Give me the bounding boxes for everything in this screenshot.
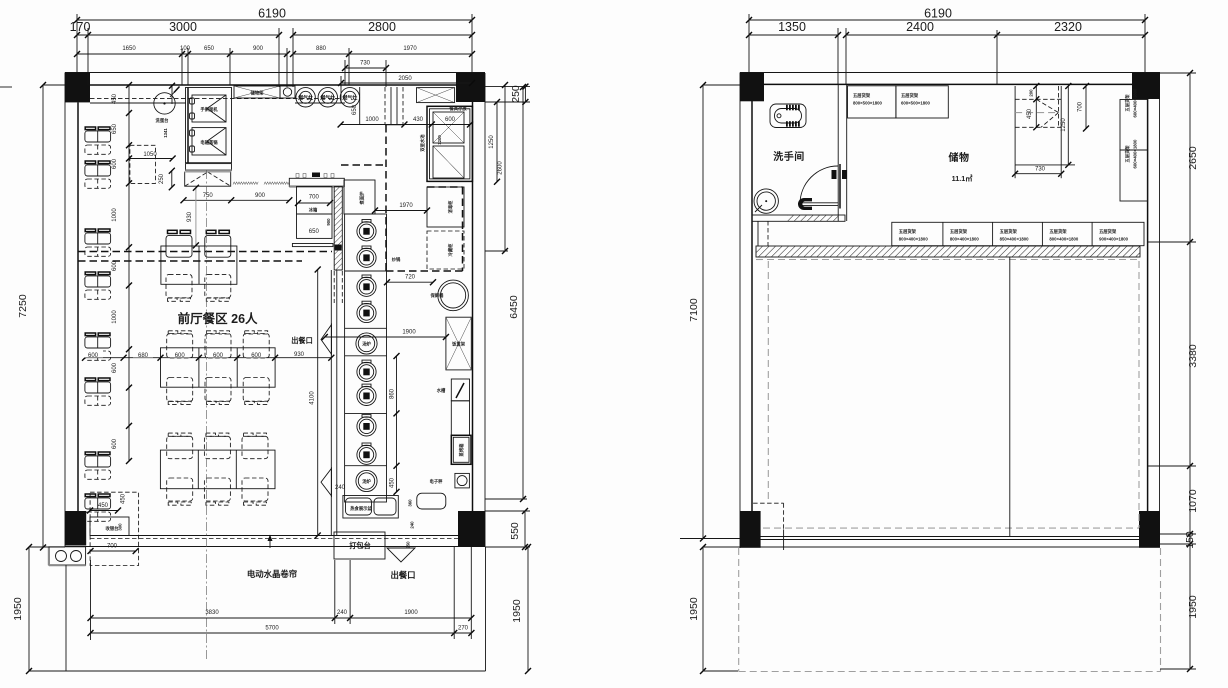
svg-text:6190: 6190 — [924, 7, 952, 21]
svg-text:五层货架: 五层货架 — [1049, 228, 1067, 235]
svg-text:450: 450 — [1027, 108, 1033, 119]
svg-text:930: 930 — [294, 352, 305, 358]
svg-text:600: 600 — [175, 353, 186, 359]
svg-text:保鲜桶: 保鲜桶 — [430, 292, 445, 299]
svg-text:650: 650 — [204, 46, 215, 52]
svg-text:600: 600 — [112, 158, 118, 169]
svg-text:2650: 2650 — [1187, 146, 1199, 170]
svg-text:600×500×1800: 600×500×1800 — [901, 101, 931, 106]
svg-text:1950: 1950 — [1187, 595, 1199, 619]
svg-text:五层货架: 五层货架 — [1124, 94, 1131, 112]
svg-text:800×400×1800: 800×400×1800 — [950, 237, 980, 242]
svg-text:1341: 1341 — [163, 128, 168, 138]
svg-text:电动水晶卷帘: 电动水晶卷帘 — [247, 569, 297, 579]
svg-text:蒸烤箱: 蒸烤箱 — [458, 443, 465, 458]
svg-text:900×400×1800: 900×400×1800 — [1099, 237, 1129, 242]
svg-text:250: 250 — [159, 173, 165, 184]
svg-text:3380: 3380 — [1187, 344, 1199, 368]
svg-text:650: 650 — [309, 229, 320, 235]
svg-text:240: 240 — [410, 521, 415, 529]
svg-text:7100: 7100 — [688, 298, 700, 322]
svg-text:冷藏柜: 冷藏柜 — [447, 243, 454, 257]
svg-text:储物: 储物 — [948, 151, 970, 164]
svg-text:860: 860 — [390, 388, 396, 399]
svg-text:600: 600 — [112, 362, 118, 373]
svg-text:1950: 1950 — [688, 597, 700, 621]
svg-text:打包台: 打包台 — [349, 541, 371, 550]
svg-text:250: 250 — [510, 85, 522, 103]
svg-text:700: 700 — [107, 544, 118, 550]
svg-text:汤炉: 汤炉 — [362, 341, 371, 348]
svg-text:双星水池: 双星水池 — [419, 134, 426, 152]
svg-text:240: 240 — [337, 610, 348, 616]
svg-text:900: 900 — [255, 193, 266, 199]
svg-text:200: 200 — [1029, 89, 1034, 97]
svg-text:300: 300 — [118, 523, 123, 531]
svg-text:270: 270 — [458, 626, 469, 632]
svg-text:洗蛋台: 洗蛋台 — [156, 117, 170, 124]
svg-text:700: 700 — [309, 195, 320, 201]
svg-text:1970: 1970 — [399, 203, 413, 209]
svg-text:五层货架: 五层货架 — [901, 92, 919, 99]
svg-text:1000: 1000 — [112, 208, 118, 222]
svg-text:170: 170 — [70, 20, 91, 34]
svg-text:五层货架: 五层货架 — [1124, 145, 1131, 163]
svg-text:电子秤: 电子秤 — [430, 478, 444, 485]
svg-text:炒锅: 炒锅 — [392, 256, 401, 263]
svg-text:600: 600 — [112, 260, 118, 271]
svg-text:600: 600 — [251, 353, 262, 359]
svg-text:450: 450 — [390, 477, 396, 488]
svg-text:7250: 7250 — [17, 294, 29, 318]
svg-text:五层货架: 五层货架 — [1000, 228, 1018, 235]
svg-text:1070: 1070 — [1187, 489, 1199, 513]
svg-text:出餐口: 出餐口 — [291, 336, 313, 345]
svg-text:2800: 2800 — [368, 20, 396, 34]
svg-text:600: 600 — [88, 353, 99, 359]
svg-text:1000: 1000 — [365, 117, 379, 123]
svg-text:6450: 6450 — [508, 295, 520, 319]
svg-text:750: 750 — [203, 193, 214, 199]
svg-text:360: 360 — [407, 499, 412, 507]
svg-text:3000: 3000 — [169, 20, 197, 34]
svg-text:880: 880 — [316, 46, 327, 52]
svg-text:450: 450 — [98, 503, 109, 509]
svg-text:450: 450 — [112, 93, 118, 104]
svg-text:燃气灶: 燃气灶 — [320, 94, 335, 101]
svg-text:4100: 4100 — [310, 391, 316, 405]
svg-text:1970: 1970 — [403, 46, 417, 52]
svg-text:730: 730 — [1035, 167, 1046, 173]
svg-text:水槽: 水槽 — [437, 387, 446, 394]
svg-text:730: 730 — [360, 61, 371, 67]
svg-text:1900: 1900 — [402, 330, 416, 336]
svg-text:2400: 2400 — [906, 20, 934, 34]
svg-text:800×400×1800: 800×400×1800 — [899, 237, 929, 242]
svg-text:430: 430 — [413, 117, 424, 123]
svg-text:680: 680 — [138, 353, 149, 359]
svg-text:2320: 2320 — [1054, 20, 1082, 34]
svg-text:1950: 1950 — [12, 597, 24, 621]
svg-text:消毒柜: 消毒柜 — [447, 200, 454, 214]
svg-text:五层货架: 五层货架 — [950, 228, 968, 235]
svg-text:洗手间: 洗手间 — [773, 150, 805, 163]
svg-text:550: 550 — [509, 522, 521, 540]
svg-text:五层货架: 五层货架 — [1099, 228, 1117, 235]
svg-text:600: 600 — [112, 438, 118, 449]
svg-text:燃气灶: 燃气灶 — [298, 94, 313, 101]
svg-text:1250: 1250 — [1061, 118, 1067, 132]
svg-text:1200: 1200 — [437, 135, 442, 145]
svg-text:燃气灶: 燃气灶 — [342, 94, 357, 101]
svg-text:900: 900 — [253, 46, 264, 52]
svg-text:600: 600 — [445, 117, 456, 123]
svg-text:930: 930 — [187, 211, 193, 222]
svg-text:煮面炉: 煮面炉 — [359, 191, 366, 206]
svg-text:650: 650 — [352, 104, 358, 115]
svg-text:五层货架: 五层货架 — [853, 92, 871, 99]
svg-text:1950: 1950 — [511, 599, 523, 623]
svg-text:600×400×1800: 600×400×1800 — [1133, 88, 1138, 118]
svg-text:240: 240 — [335, 485, 346, 491]
svg-text:11.1㎡: 11.1㎡ — [952, 174, 974, 183]
svg-text:前厅餐区 26人: 前厅餐区 26人 — [178, 311, 258, 326]
svg-text:900: 900 — [326, 218, 331, 226]
svg-text:汤炉: 汤炉 — [362, 478, 371, 485]
svg-text:720: 720 — [405, 275, 416, 281]
svg-text:1650: 1650 — [122, 46, 136, 52]
svg-text:电磁蒸锅: 电磁蒸锅 — [200, 139, 218, 146]
svg-text:700: 700 — [1078, 101, 1084, 112]
svg-text:600: 600 — [213, 353, 224, 359]
svg-text:餐具存放: 餐具存放 — [449, 105, 467, 112]
svg-text:2600: 2600 — [498, 161, 504, 175]
svg-text:250: 250 — [406, 541, 411, 549]
svg-text:800×400×1800: 800×400×1800 — [1049, 237, 1079, 242]
svg-text:出餐口: 出餐口 — [390, 570, 415, 580]
svg-text:800×500×1800: 800×500×1800 — [853, 101, 883, 106]
svg-text:1050: 1050 — [143, 152, 157, 158]
svg-text:1000: 1000 — [112, 310, 118, 324]
svg-text:1250: 1250 — [489, 135, 495, 149]
svg-text:5700: 5700 — [265, 626, 279, 632]
svg-text:1900: 1900 — [404, 610, 418, 616]
svg-text:手擀面机: 手擀面机 — [200, 106, 218, 113]
svg-text:冰箱: 冰箱 — [309, 207, 318, 214]
svg-text:1350: 1350 — [778, 20, 806, 34]
svg-text:五层货架: 五层货架 — [899, 228, 917, 235]
svg-text:450: 450 — [121, 493, 127, 504]
svg-text:3830: 3830 — [205, 610, 219, 616]
svg-text:6190: 6190 — [258, 7, 286, 21]
svg-text:饭盒架: 饭盒架 — [451, 341, 466, 348]
svg-text:850×400×1800: 850×400×1800 — [1000, 237, 1030, 242]
svg-text:2050: 2050 — [398, 76, 412, 82]
svg-text:600×400×1800: 600×400×1800 — [1133, 139, 1138, 169]
svg-text:650: 650 — [112, 123, 118, 134]
svg-text:储物架: 储物架 — [250, 90, 265, 97]
svg-text:热食展示盆: 热食展示盆 — [350, 505, 372, 512]
